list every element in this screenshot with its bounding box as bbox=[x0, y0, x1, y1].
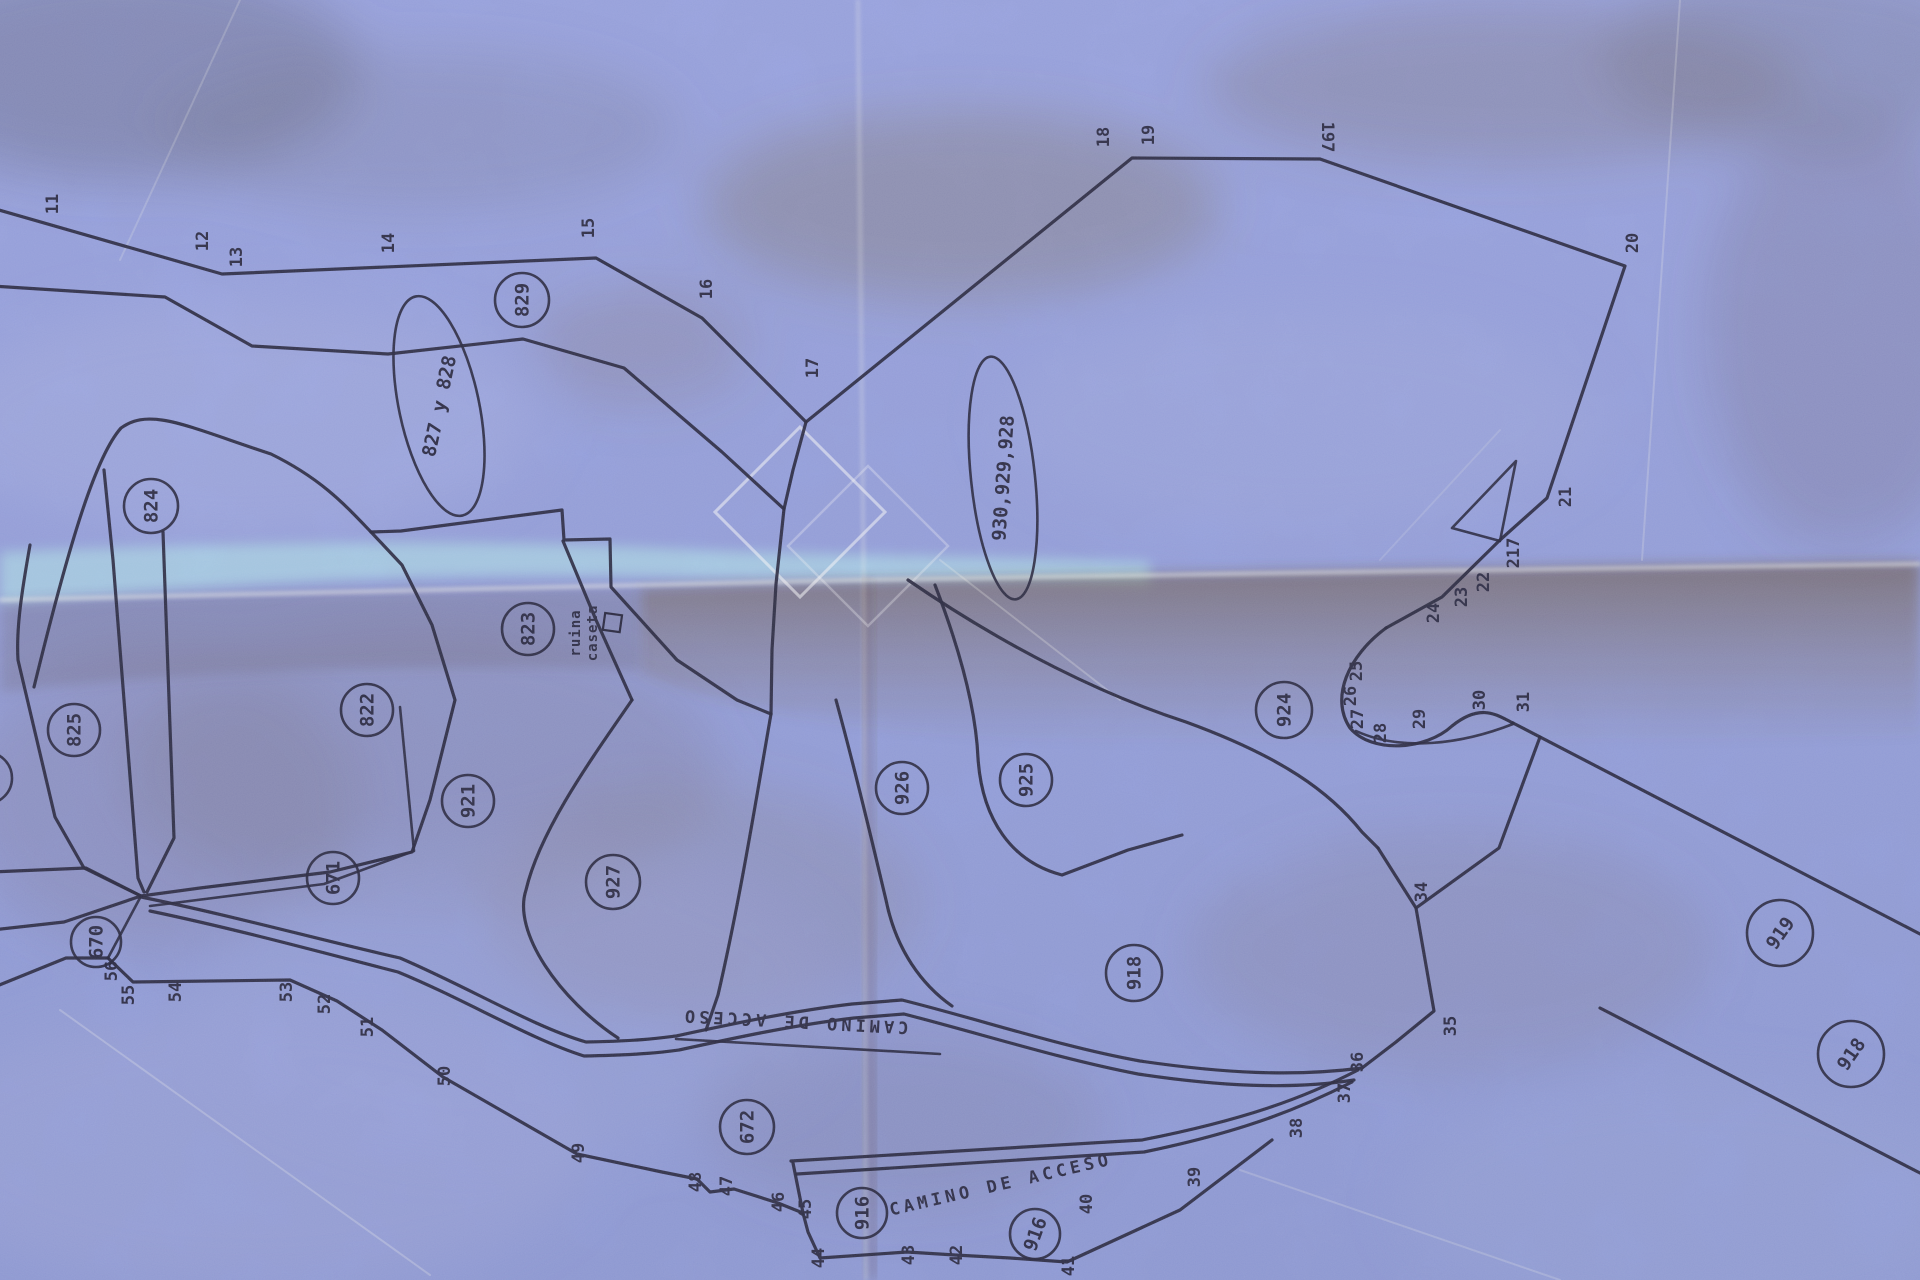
paper-grain bbox=[0, 0, 1920, 1280]
cadastral-map: 1112131415161718191972021217222324252627… bbox=[0, 0, 1920, 1280]
map-photo: 1112131415161718191972021217222324252627… bbox=[0, 0, 1920, 1280]
